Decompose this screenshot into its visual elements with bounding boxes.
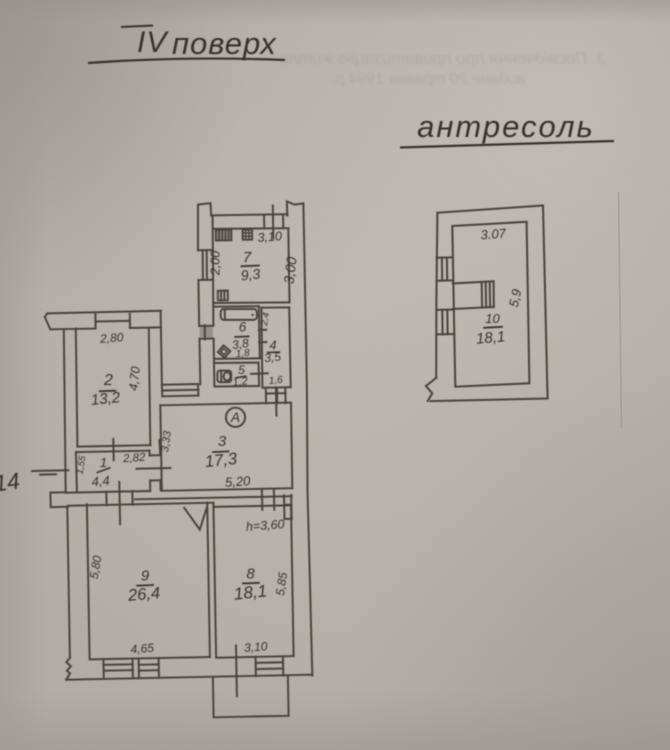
svg-text:2,00: 2,00 <box>209 251 223 276</box>
svg-text:видане 20 травня 1994 р.: видане 20 травня 1994 р. <box>331 71 525 88</box>
svg-text:9,3: 9,3 <box>240 266 261 284</box>
svg-text:2,82: 2,82 <box>122 452 147 466</box>
svg-text:2: 2 <box>103 372 113 389</box>
svg-text:IV: IV <box>137 26 169 59</box>
svg-text:9: 9 <box>141 568 150 585</box>
svg-text:13,2: 13,2 <box>90 389 121 409</box>
svg-text:4,65: 4,65 <box>130 641 155 657</box>
svg-text:h=3,60: h=3,60 <box>245 517 285 534</box>
svg-text:18,1: 18,1 <box>475 328 506 347</box>
svg-text:1,2: 1,2 <box>232 375 248 389</box>
svg-text:поверх: поверх <box>172 26 277 61</box>
svg-text:3,00: 3,00 <box>280 256 299 285</box>
svg-text:2,80: 2,80 <box>99 330 125 346</box>
svg-text:7: 7 <box>243 249 252 266</box>
svg-text:A: A <box>230 410 240 425</box>
svg-text:3,10: 3,10 <box>257 229 282 245</box>
svg-text:антресоль: антресоль <box>417 109 595 144</box>
svg-text:26,4: 26,4 <box>126 584 161 605</box>
svg-text:17,3: 17,3 <box>204 450 239 471</box>
svg-text:10: 10 <box>485 311 500 326</box>
svg-text:5,20: 5,20 <box>225 473 252 490</box>
svg-text:3,5: 3,5 <box>264 349 282 365</box>
svg-text:1,8: 1,8 <box>235 348 250 360</box>
svg-text:1,6: 1,6 <box>268 375 283 387</box>
svg-text:3: 3 <box>218 433 227 450</box>
svg-text:3,10: 3,10 <box>244 639 269 655</box>
svg-text:3. Посвідчення про приватизаці: 3. Посвідчення про приватизацію житла <box>280 49 607 68</box>
svg-text:6: 6 <box>239 320 247 335</box>
svg-text:4,4: 4,4 <box>91 473 110 490</box>
svg-text:1: 1 <box>100 455 107 470</box>
svg-text:14: 14 <box>0 467 21 496</box>
svg-text:4,70: 4,70 <box>126 366 142 392</box>
svg-text:3.07: 3.07 <box>480 226 507 243</box>
svg-text:18,1: 18,1 <box>233 581 268 603</box>
svg-text:8: 8 <box>246 566 255 583</box>
